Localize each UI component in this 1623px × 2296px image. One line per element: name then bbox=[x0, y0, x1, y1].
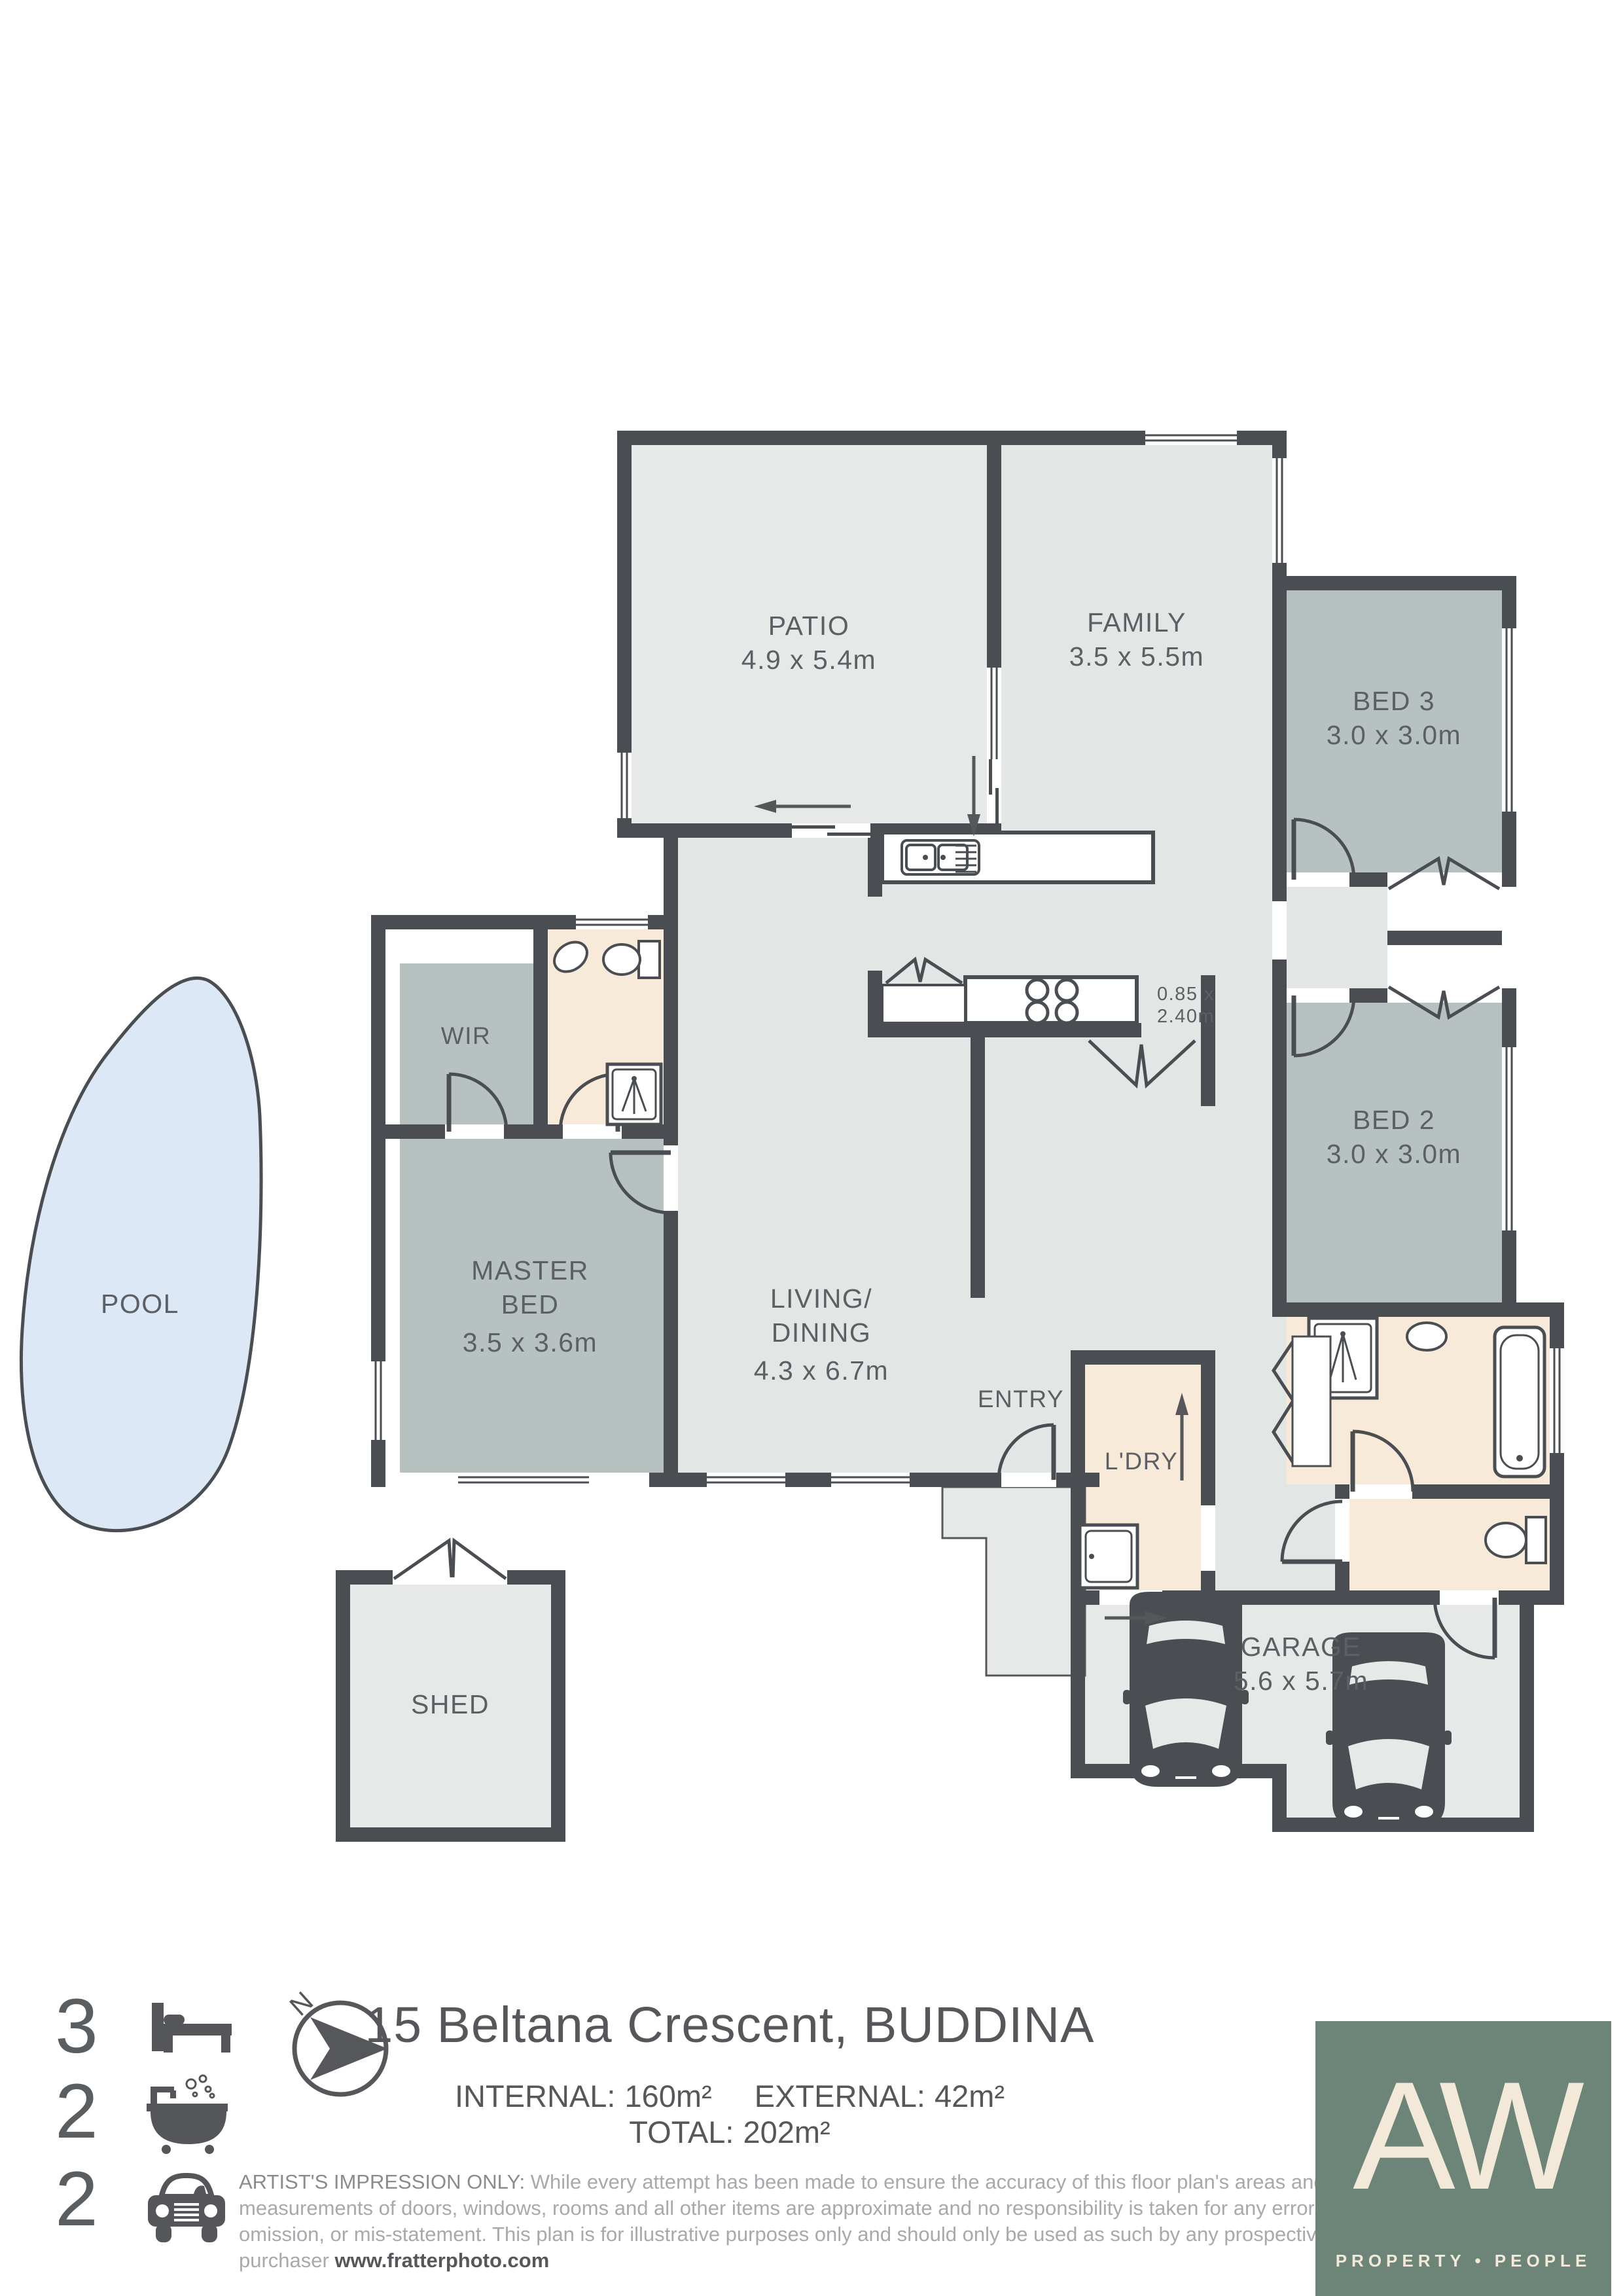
living-label-2: DINING bbox=[772, 1318, 872, 1348]
master-dims: 3.5 x 3.6m bbox=[463, 1327, 597, 1357]
family-dims: 3.5 x 5.5m bbox=[1069, 641, 1204, 672]
bed2-dims: 3.0 x 3.0m bbox=[1327, 1139, 1461, 1169]
stat-internal: INTERNAL:160m² bbox=[455, 2079, 712, 2113]
car-icon bbox=[148, 2173, 225, 2242]
pool bbox=[21, 978, 261, 1530]
bed-icon bbox=[152, 2003, 232, 2053]
master-label-1: MASTER bbox=[471, 1255, 589, 1285]
beds-count: 3 bbox=[41, 1982, 113, 2071]
floorplan-page: { "plan": { "rooms": { "patio": {"name":… bbox=[0, 0, 1623, 2296]
ensuite-toilet-icon bbox=[603, 944, 640, 975]
wc-toilet-icon bbox=[1486, 1523, 1526, 1557]
wir-shelf bbox=[400, 929, 533, 963]
kitchen-island bbox=[882, 833, 1153, 882]
garage-label: GARAGE bbox=[1241, 1632, 1361, 1662]
shed-label: SHED bbox=[411, 1689, 490, 1719]
ensuite-toilet-cistern bbox=[639, 941, 660, 978]
logo-monogram: AW bbox=[1353, 2054, 1574, 2217]
entry-label: ENTRY bbox=[978, 1386, 1064, 1412]
disclaimer-lead: ARTIST'S IMPRESSION ONLY: bbox=[239, 2170, 525, 2193]
car-top-view-icon bbox=[1123, 1592, 1249, 1787]
linen-cupboard bbox=[1293, 1336, 1330, 1466]
pool-label: POOL bbox=[101, 1289, 179, 1319]
laundry-fixtures bbox=[1080, 1525, 1137, 1588]
bathtub-icon bbox=[1495, 1327, 1544, 1477]
pantry bbox=[882, 985, 965, 1023]
pool-water bbox=[21, 978, 261, 1530]
bench-dims-1: 0.85 x bbox=[1157, 984, 1215, 1005]
patio-dims: 4.9 x 5.4m bbox=[741, 645, 876, 675]
disclaimer-link: www.fratterphoto.com bbox=[334, 2249, 549, 2272]
bathroom-basin-icon bbox=[1407, 1323, 1446, 1350]
ldry-label: L'DRY bbox=[1105, 1448, 1179, 1475]
stat-external-value: 42m² bbox=[935, 2079, 1005, 2113]
floor-plan: PATIO 4.9 x 5.4m FAMILY 3.5 x 5.5m BED 3… bbox=[0, 0, 1623, 2296]
stat-internal-value: 160m² bbox=[624, 2079, 711, 2113]
page-title: 15 Beltana Crescent, BUDDINA bbox=[327, 1996, 1132, 2054]
bed3-label: BED 3 bbox=[1353, 686, 1435, 716]
stat-external: EXTERNAL:42m² bbox=[755, 2079, 1005, 2113]
compass-north-label: N bbox=[283, 1986, 319, 2022]
garage-dims: 5.6 x 5.7m bbox=[1234, 1666, 1368, 1696]
wir-label: WIR bbox=[441, 1022, 491, 1049]
bed-hall-nook bbox=[1287, 887, 1387, 988]
bath-icon bbox=[147, 2075, 228, 2154]
stat-external-label: EXTERNAL: bbox=[755, 2079, 925, 2113]
bed3-dims: 3.0 x 3.0m bbox=[1327, 720, 1461, 750]
bed2-label: BED 2 bbox=[1353, 1105, 1435, 1135]
agency-logo: AW PROPERTY • PEOPLE bbox=[1315, 2021, 1611, 2296]
stat-total-value: 202m² bbox=[743, 2115, 830, 2149]
disclaimer: ARTIST'S IMPRESSION ONLY: While every at… bbox=[239, 2169, 1358, 2274]
patio-label: PATIO bbox=[768, 611, 849, 641]
living-label-1: LIVING/ bbox=[770, 1283, 872, 1314]
footer-icons bbox=[147, 2003, 232, 2242]
entry-porch-slab bbox=[942, 1487, 1085, 1676]
baths-count: 2 bbox=[41, 2067, 113, 2156]
cars-count: 2 bbox=[41, 2155, 113, 2244]
family-label: FAMILY bbox=[1087, 607, 1186, 637]
kitchen-bench bbox=[882, 977, 1137, 1023]
logo-tagline: PROPERTY • PEOPLE bbox=[1336, 2251, 1592, 2271]
master-label-2: BED bbox=[501, 1289, 560, 1319]
laundry-tub-icon bbox=[1080, 1525, 1137, 1588]
wc-toilet-cistern bbox=[1526, 1517, 1546, 1563]
area-stats: INTERNAL:160m² EXTERNAL:42m² TOTAL:202m² bbox=[327, 2078, 1132, 2150]
stat-total: TOTAL:202m² bbox=[629, 2115, 830, 2149]
stat-internal-label: INTERNAL: bbox=[455, 2079, 616, 2113]
stat-total-label: TOTAL: bbox=[629, 2115, 734, 2149]
bench-dims-2: 2.40m bbox=[1157, 1006, 1215, 1027]
living-dims: 4.3 x 6.7m bbox=[754, 1355, 889, 1386]
